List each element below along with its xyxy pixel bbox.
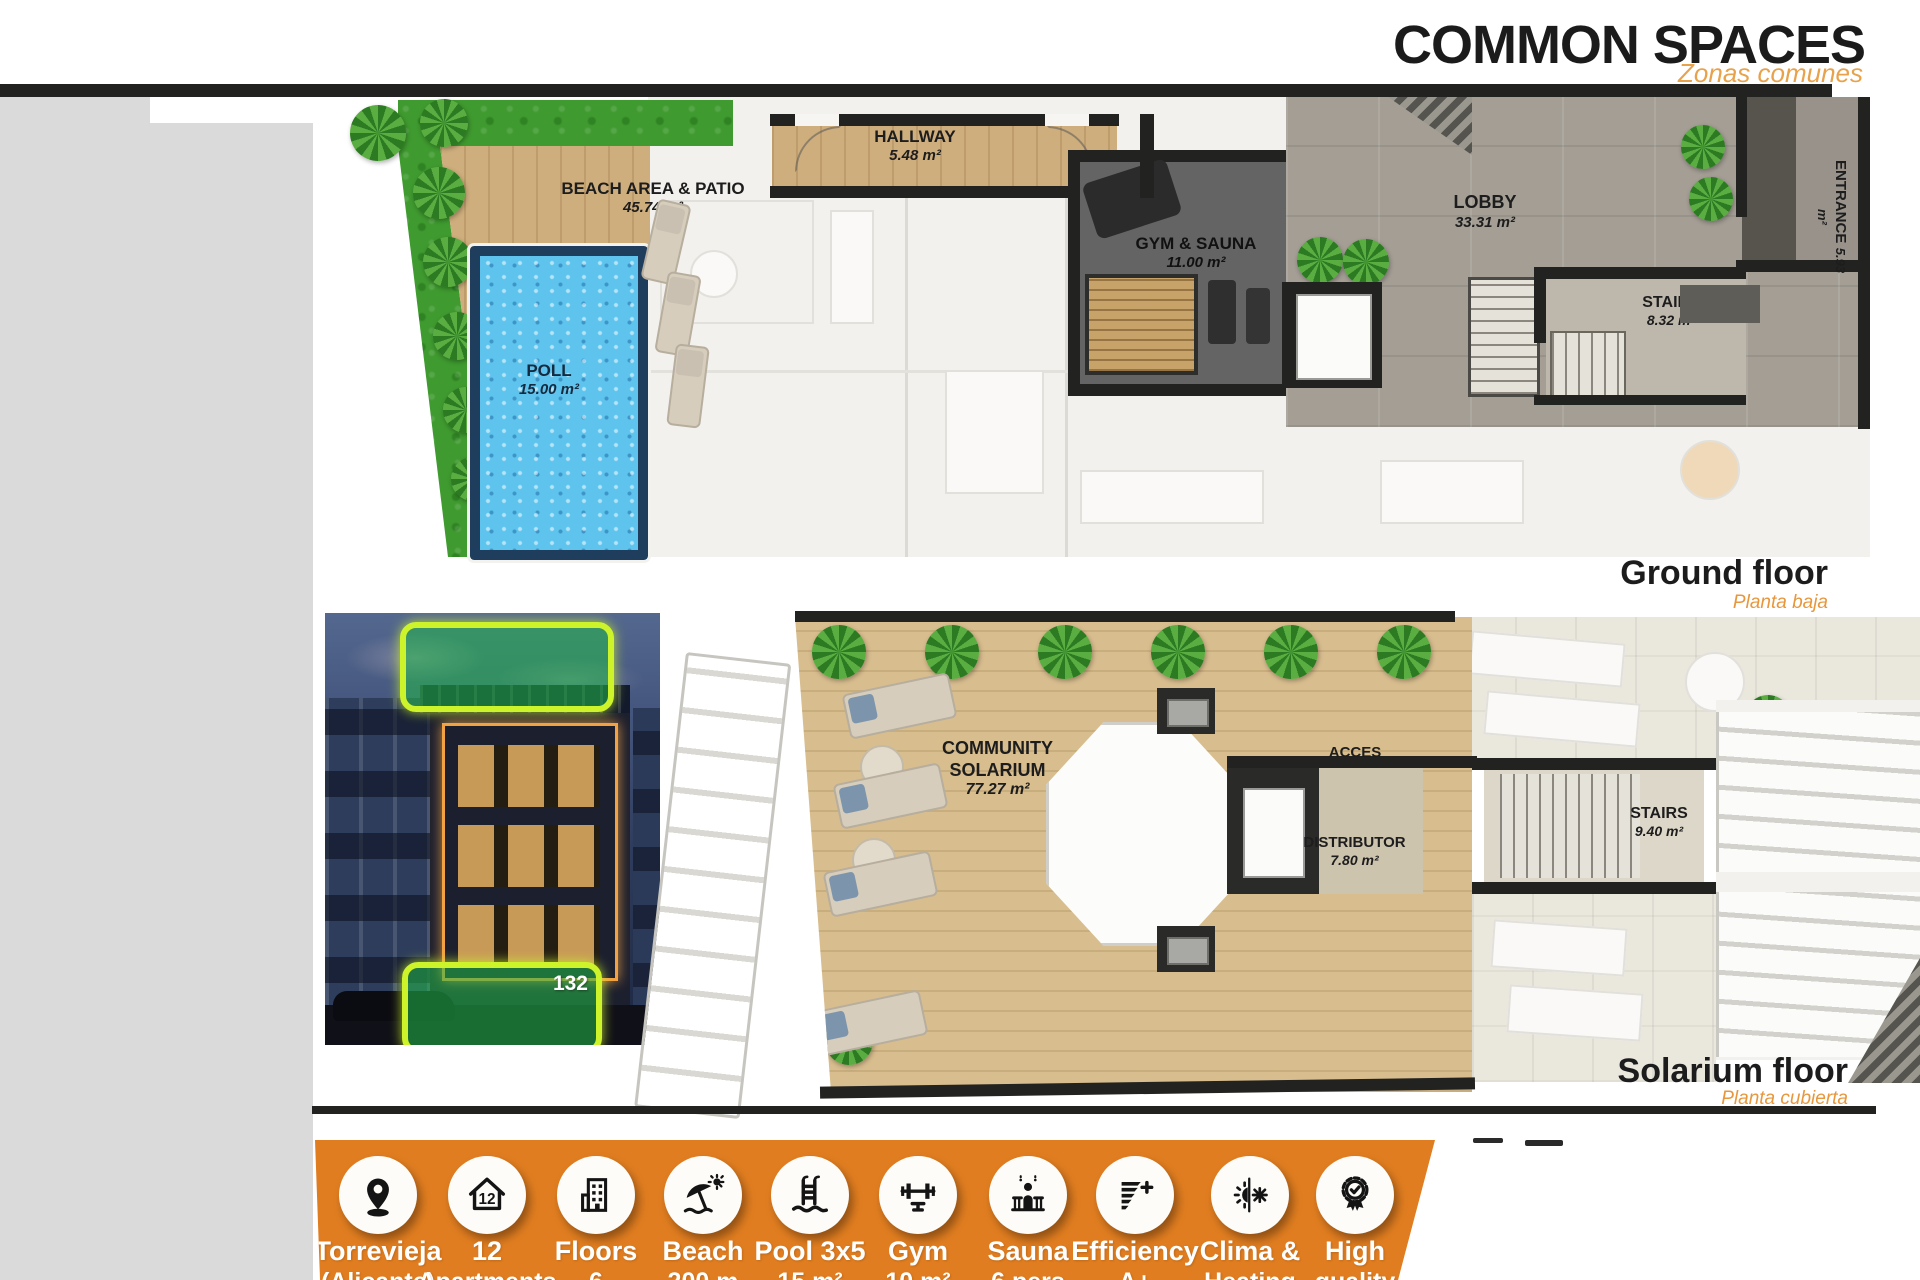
features-bar: Torrevieja(Alicante) 12 12Apartments: [315, 1140, 1435, 1280]
palm-plant: [420, 99, 468, 147]
hallway-bottom-wall: [770, 186, 1119, 198]
deck-bush: [1264, 625, 1318, 679]
lit-windows-row: [458, 905, 600, 967]
solarium-stairs-label: STAIRS 9.40 m²: [1614, 804, 1704, 839]
feature-circle-clima: [1211, 1156, 1289, 1234]
entrance-label: ENTRANCE 5.93 m²: [1803, 152, 1849, 282]
ground-floor-plan: BEACH AREA & PATIO 45.74 m² POLL 15.00 m…: [325, 97, 1870, 557]
entrance-plant: [1681, 125, 1725, 169]
faded-lounger: [1490, 919, 1627, 976]
elevator-shaft: [1282, 282, 1382, 388]
roof-slats-upper: [1716, 712, 1920, 872]
lounger-cushion: [666, 276, 696, 306]
building-floors-icon: [573, 1172, 619, 1218]
gym-label: GYM & SAUNA 11.00 m²: [1116, 234, 1276, 271]
lounger-cushion: [818, 1010, 849, 1041]
solarium-highlight-box: [400, 622, 614, 712]
stairs-left-wall: [1534, 267, 1546, 343]
feature-circle-sauna: [989, 1156, 1067, 1234]
lobby-label: LOBBY 33.31 m²: [1405, 192, 1565, 231]
ground-floor-caption-es: Planta baja: [1733, 592, 1828, 614]
pool-label: POLL 15.00 m²: [480, 361, 618, 398]
unit-badge: 132: [553, 972, 588, 996]
feature-circle-gym: [879, 1156, 957, 1234]
stairs-bottom-wall: [1534, 395, 1746, 405]
treadmill: [1081, 158, 1183, 240]
faded-sofa: [1380, 460, 1524, 524]
gym-equipment: [1208, 280, 1236, 344]
lounger-cushion: [847, 693, 878, 724]
solarium-wall: [1472, 758, 1716, 770]
solarium-stairs-room: STAIRS 9.40 m²: [1484, 770, 1704, 882]
header-divider-bar: [0, 84, 1832, 97]
stairs-top-wall: [1534, 267, 1746, 279]
feature-circle-quality: [1316, 1156, 1394, 1234]
octagon-skylight: [1046, 722, 1238, 946]
feature-label-quality: Highquality: [1280, 1236, 1430, 1280]
sun-lounger: [822, 850, 938, 918]
deck-bush: [1377, 625, 1431, 679]
faded-rug: [1680, 440, 1740, 500]
feature-circle-location: [339, 1156, 417, 1234]
feature-circle-apartments: 12: [448, 1156, 526, 1234]
beach-umbrella-icon: [680, 1172, 726, 1218]
sun-lounger: [841, 672, 957, 740]
beach-area-label: BEACH AREA & PATIO 45.74 m²: [553, 179, 753, 216]
deck-bush: [925, 625, 979, 679]
hallway-door-gap: [795, 114, 839, 126]
deck-bush: [812, 625, 866, 679]
distributor-label: DISTRIBUTOR 7.80 m²: [1282, 834, 1427, 868]
solarium-top-wall: [795, 611, 1455, 622]
vent-grille: [1167, 937, 1209, 965]
crop-dash: [1525, 1140, 1563, 1146]
efficiency-chart-icon: [1112, 1172, 1158, 1218]
stair-flight: [1468, 277, 1540, 397]
feature-circle-floors: [557, 1156, 635, 1234]
crop-dash: [1473, 1138, 1503, 1143]
ground-floor-caption: Ground floor: [1620, 554, 1828, 593]
palm-plant: [350, 105, 406, 161]
solarium-elevator-shaft: [1227, 768, 1319, 894]
feature-circle-beach: [664, 1156, 742, 1234]
lounger-cushion: [655, 204, 686, 235]
left-panel-notch: [150, 97, 313, 123]
faded-lounger: [1468, 630, 1625, 687]
lounger-cushion: [828, 871, 859, 902]
skylight-vent-top: [1157, 688, 1215, 734]
lobby-plant: [1297, 237, 1343, 283]
gym-barbell-icon: [895, 1172, 941, 1218]
bottom-divider-bar: [312, 1106, 1876, 1114]
solarium-floor-caption: Solarium floor: [1618, 1052, 1848, 1091]
brochure-page: COMMON SPACES Zonas comunes BEACH AREA &…: [0, 0, 1920, 1280]
deck-bush: [1038, 625, 1092, 679]
plan-right-wall: [1858, 97, 1870, 429]
quality-medal-icon: [1332, 1172, 1378, 1218]
faded-sofa: [830, 210, 874, 324]
deck-bush: [1151, 625, 1205, 679]
feature-circle-efficiency: [1096, 1156, 1174, 1234]
sauna-benches: [1085, 274, 1198, 375]
entrance-wall: [1736, 97, 1747, 217]
entrance-plant: [1689, 177, 1733, 221]
faded-kitchen: [1080, 470, 1264, 524]
left-gray-panel: [0, 97, 313, 1280]
faded-lounger: [1483, 690, 1640, 747]
distributor-floor: [1319, 768, 1423, 894]
palm-plant: [413, 167, 465, 219]
entrance-step: [1680, 285, 1760, 323]
gym-sauna-room: GYM & SAUNA 11.00 m²: [1068, 150, 1310, 396]
faded-lounger: [1506, 984, 1643, 1041]
feature-circle-pool: [771, 1156, 849, 1234]
gym-equipment: [1246, 288, 1270, 344]
building-photo: 132: [325, 613, 660, 1045]
ground-highlight-box: 132: [402, 962, 602, 1045]
wall-segment: [1140, 114, 1154, 198]
lounger-cushion: [838, 783, 869, 814]
skylight-vent-bottom: [1157, 926, 1215, 972]
lit-windows-row: [458, 745, 600, 807]
hallway-label: HALLWAY 5.48 m²: [835, 127, 995, 164]
solarium-wall: [1472, 882, 1716, 894]
elevator-cab: [1296, 294, 1372, 380]
palm-plant: [423, 237, 473, 287]
lit-windows-row: [458, 825, 600, 887]
sauna-person-icon: [1005, 1172, 1051, 1218]
vent-grille: [1167, 699, 1209, 727]
lobby-plant: [1343, 239, 1389, 285]
acces-label: ACCES: [1320, 744, 1390, 762]
community-solarium-label: COMMUNITY SOLARIUM 77.27 m²: [930, 738, 1065, 799]
entrance-walkway: [1742, 97, 1796, 269]
hallway-door-gap: [1045, 114, 1089, 126]
stair-flight: [1550, 331, 1626, 397]
climate-sun-snowflake-icon: [1227, 1172, 1273, 1218]
faded-bed: [945, 370, 1044, 494]
house-12-icon: 12: [464, 1172, 510, 1218]
pool: POLL 15.00 m²: [470, 246, 648, 560]
location-pin-icon: [355, 1172, 401, 1218]
pool-ladder-icon: [787, 1172, 833, 1218]
svg-text:12: 12: [478, 1191, 495, 1208]
lounger-cushion: [675, 349, 704, 378]
faint-wall: [905, 190, 908, 557]
